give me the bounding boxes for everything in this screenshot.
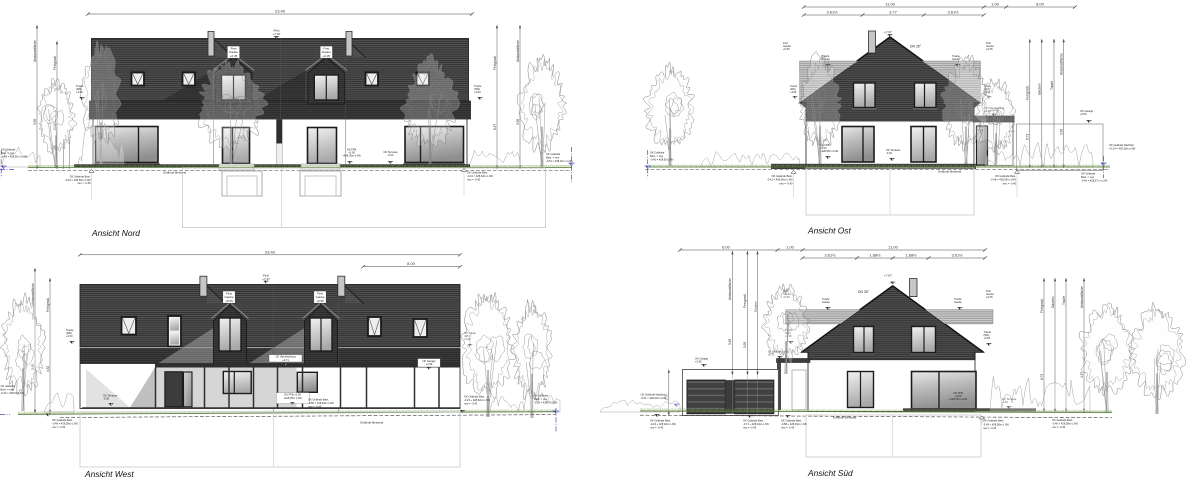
svg-text:6.00: 6.00 bbox=[722, 245, 731, 250]
svg-text:+428,05m ü.NN: +428,05m ü.NN bbox=[283, 396, 301, 400]
svg-text:8.00: 8.00 bbox=[407, 261, 416, 266]
svg-text:OK Gelände: OK Gelände bbox=[1, 384, 16, 388]
svg-text:Traufe: Traufe bbox=[1050, 81, 1054, 90]
svg-text:-0.45 = 428,60 m ü.NN: -0.45 = 428,60 m ü.NN bbox=[1, 154, 27, 158]
svg-text:OK Gelände Best.: OK Gelände Best. bbox=[995, 174, 1016, 178]
svg-text:+7.97: +7.97 bbox=[884, 30, 892, 34]
svg-text:Best. = neu: Best. = neu bbox=[650, 154, 664, 158]
svg-text:OK Gelände Best.: OK Gelände Best. bbox=[983, 419, 1004, 423]
svg-text:+3.05: +3.05 bbox=[1080, 112, 1087, 116]
svg-text:1.00: 1.00 bbox=[786, 245, 795, 250]
svg-text:OK Gelände Nachbar: OK Gelände Nachbar bbox=[1109, 143, 1134, 147]
svg-text:+428,05m ü.NN: +428,05m ü.NN bbox=[949, 397, 967, 401]
svg-text:Traufe: Traufe bbox=[1062, 296, 1066, 305]
svg-text:Ansicht Ost: Ansicht Ost bbox=[807, 226, 851, 236]
svg-text:-0.01 = 429,04m ü.NN: -0.01 = 429,04m ü.NN bbox=[641, 396, 667, 400]
svg-text:Abstandsfläche: Abstandsfläche bbox=[33, 40, 37, 62]
svg-text:+6.35: +6.35 bbox=[323, 54, 331, 58]
svg-text:3.61½: 3.61½ bbox=[947, 10, 959, 15]
svg-text:Fert.gmdl.: Fert.gmdl. bbox=[743, 294, 747, 308]
svg-text:-0.80 = 428,39m ü.NN: -0.80 = 428,39m ü.NN bbox=[308, 401, 334, 405]
svg-text:-0.51 = 428,04 m ü.NN: -0.51 = 428,04 m ü.NN bbox=[546, 159, 572, 163]
svg-text:8.73: 8.73 bbox=[1026, 134, 1030, 140]
svg-text:+0.24 = 429,29m ü.NN: +0.24 = 429,29m ü.NN bbox=[1109, 146, 1135, 150]
svg-text:-0.40 = 428,60 ü.NN: -0.40 = 428,60 ü.NN bbox=[1, 391, 25, 395]
svg-text:4.32: 4.32 bbox=[46, 366, 50, 372]
svg-text:-0.02: -0.02 bbox=[886, 151, 892, 155]
svg-text:Abstandsfläche: Abstandsfläche bbox=[31, 283, 35, 305]
svg-text:+7.47: +7.47 bbox=[262, 277, 270, 281]
svg-text:+3.63: +3.63 bbox=[790, 91, 797, 94]
svg-text:Fert.gmdl.: Fert.gmdl. bbox=[1040, 299, 1044, 313]
svg-text:neu = -0.40: neu = -0.40 bbox=[52, 425, 66, 429]
svg-text:Gauben: Gauben bbox=[753, 301, 757, 312]
svg-text:+6.35: +6.35 bbox=[230, 54, 238, 58]
svg-text:Ansicht Süd: Ansicht Süd bbox=[807, 468, 853, 478]
svg-text:Abstandsfläche: Abstandsfläche bbox=[1080, 286, 1084, 308]
svg-text:OK Gelände: OK Gelände bbox=[1, 148, 16, 152]
svg-text:OK Gelände: OK Gelände bbox=[650, 151, 665, 155]
svg-text:neu = -0.40: neu = -0.40 bbox=[308, 404, 322, 408]
svg-text:3.61½: 3.61½ bbox=[826, 10, 838, 15]
svg-text:Fert.gmdl.: Fert.gmdl. bbox=[1026, 86, 1030, 100]
svg-text:-0.71 + 428,34m ü.NN: -0.71 + 428,34m ü.NN bbox=[743, 422, 769, 426]
svg-text:DN 35°: DN 35° bbox=[858, 290, 870, 294]
svg-text:neu = -0.45: neu = -0.45 bbox=[77, 181, 91, 185]
svg-text:Fert.gmdl.: Fert.gmdl. bbox=[493, 56, 497, 70]
svg-text:+6.35: +6.35 bbox=[783, 47, 790, 51]
svg-text:1.88½: 1.88½ bbox=[905, 253, 917, 258]
svg-text:11.00: 11.00 bbox=[888, 245, 898, 250]
svg-text:+428,05m ü.NN: +428,05m ü.NN bbox=[342, 154, 360, 158]
svg-text:3.61½: 3.61½ bbox=[951, 253, 963, 258]
svg-text:Ansicht West: Ansicht West bbox=[84, 469, 134, 479]
svg-text:neu = -0.40: neu = -0.40 bbox=[983, 426, 997, 430]
svg-text:OK Gelände Best.: OK Gelände Best. bbox=[781, 419, 802, 423]
svg-text:+2.71: +2.71 bbox=[282, 358, 289, 362]
svg-text:+3.93: +3.93 bbox=[76, 90, 83, 94]
svg-text:Gauben: Gauben bbox=[1051, 296, 1055, 308]
svg-text:Abstandsfläche: Abstandsfläche bbox=[1060, 53, 1064, 75]
svg-text:OK Gelände: OK Gelände bbox=[534, 394, 549, 398]
svg-text:Gelände Bestand: Gelände Bestand bbox=[163, 171, 187, 175]
svg-text:Abstandsfläche: Abstandsfläche bbox=[516, 40, 520, 62]
svg-text:Best. = neu: Best. = neu bbox=[1081, 175, 1095, 179]
svg-text:11.00: 11.00 bbox=[885, 2, 895, 7]
svg-text:neu = -0.40: neu = -0.40 bbox=[781, 425, 795, 429]
svg-text:OK Gelände: OK Gelände bbox=[546, 152, 561, 156]
svg-text:4.37: 4.37 bbox=[1080, 372, 1084, 378]
svg-text:3.95: 3.95 bbox=[516, 119, 520, 125]
svg-text:Gelände Bestand: Gelände Bestand bbox=[833, 416, 857, 420]
svg-text:OK Gelände: OK Gelände bbox=[1081, 172, 1096, 176]
svg-text:Gelände Bestand: Gelände Bestand bbox=[938, 170, 962, 174]
svg-text:3.95: 3.95 bbox=[728, 339, 732, 345]
svg-text:Gaube: Gaube bbox=[954, 300, 962, 304]
svg-text:-0.41 = 428,64m ü.NN: -0.41 = 428,64m ü.NN bbox=[467, 174, 493, 178]
svg-text:+2.95: +2.95 bbox=[695, 360, 702, 364]
svg-text:-0.46 = 428,57 m ü.NN: -0.46 = 428,57 m ü.NN bbox=[1081, 178, 1107, 182]
svg-text:23.40: 23.40 bbox=[275, 9, 286, 14]
svg-text:Best. = neu: Best. = neu bbox=[1, 387, 15, 391]
svg-text:3.77: 3.77 bbox=[889, 10, 898, 15]
svg-text:1.88½: 1.88½ bbox=[869, 253, 881, 258]
svg-text:Fert.gmdl.: Fert.gmdl. bbox=[53, 56, 57, 70]
svg-text:+3.93: +3.93 bbox=[474, 90, 481, 94]
svg-text:3.95: 3.95 bbox=[33, 119, 37, 125]
svg-text:neu = -0.40: neu = -0.40 bbox=[467, 178, 481, 182]
svg-text:-0.46 + 428,58m ü.NN: -0.46 + 428,58m ü.NN bbox=[1052, 421, 1078, 425]
svg-text:-0.40 = 428,50 ü.NN: -0.40 = 428,50 ü.NN bbox=[650, 157, 674, 161]
svg-text:Ansicht Nord: Ansicht Nord bbox=[91, 228, 140, 238]
svg-text:Best. = neu: Best. = neu bbox=[546, 155, 560, 159]
svg-text:+3.63: +3.63 bbox=[66, 334, 73, 338]
svg-text:+3.63: +3.63 bbox=[984, 336, 991, 340]
svg-text:3.95: 3.95 bbox=[743, 342, 747, 348]
svg-text:8.73: 8.73 bbox=[1040, 374, 1044, 380]
svg-text:3.95: 3.95 bbox=[1060, 129, 1064, 135]
svg-text:OK Gelände Best.: OK Gelände Best. bbox=[650, 419, 671, 423]
svg-text:neu = -0.40: neu = -0.40 bbox=[1003, 181, 1017, 185]
svg-text:neu = -0.40: neu = -0.40 bbox=[650, 425, 664, 429]
svg-text:OK Gelände Best.: OK Gelände Best. bbox=[308, 398, 329, 402]
svg-text:+6.35: +6.35 bbox=[986, 295, 993, 299]
svg-text:6.97: 6.97 bbox=[493, 124, 497, 130]
svg-text:OK Gelände Best.: OK Gelände Best. bbox=[52, 418, 73, 422]
svg-text:OK Gelände Best.: OK Gelände Best. bbox=[1052, 418, 1073, 422]
svg-text:-0.38: -0.38 bbox=[103, 397, 109, 401]
svg-text:-0.23 + 428,62m ü.NN: -0.23 + 428,62m ü.NN bbox=[464, 398, 490, 402]
svg-text:neu = -0.40: neu = -0.40 bbox=[1052, 425, 1066, 429]
svg-text:-0.30 = 428,78 ü.NN: -0.30 = 428,78 ü.NN bbox=[534, 400, 558, 404]
svg-text:Gelände Bestand: Gelände Bestand bbox=[360, 421, 384, 425]
svg-text:OK Gelände Best.: OK Gelände Best. bbox=[772, 174, 793, 178]
svg-text:+6.35: +6.35 bbox=[986, 47, 993, 51]
svg-text:3.61½: 3.61½ bbox=[824, 253, 836, 258]
svg-text:OK Gelände Best.: OK Gelände Best. bbox=[464, 395, 485, 399]
svg-text:-0.88 + 428,33m ü.NN: -0.88 + 428,33m ü.NN bbox=[781, 422, 807, 426]
svg-text:+7.97: +7.97 bbox=[273, 32, 281, 36]
svg-text:Gauben: Gauben bbox=[1038, 83, 1042, 95]
svg-text:1.00: 1.00 bbox=[991, 2, 1000, 7]
svg-text:OK Gelände Best.: OK Gelände Best. bbox=[467, 171, 488, 175]
svg-text:Abstandsfläche: Abstandsfläche bbox=[728, 278, 732, 300]
svg-text:-0.41 = 428,64m ü.NN: -0.41 = 428,64m ü.NN bbox=[767, 178, 793, 182]
svg-text:23.40: 23.40 bbox=[265, 249, 276, 254]
svg-text:+6.55: +6.55 bbox=[316, 299, 324, 303]
svg-text:-0.46 = 428,59m ü.NN: -0.46 = 428,59m ü.NN bbox=[52, 421, 78, 425]
svg-text:neu = -0.40: neu = -0.40 bbox=[743, 425, 757, 429]
svg-text:Fert.gmdl.: Fert.gmdl. bbox=[46, 298, 50, 312]
svg-text:+2.96: +2.96 bbox=[426, 362, 433, 366]
svg-text:+6.55: +6.55 bbox=[225, 299, 233, 303]
svg-text:-0.23 + 428,02m ü.NN: -0.23 + 428,02m ü.NN bbox=[650, 422, 676, 426]
svg-text:neu = -0.40: neu = -0.40 bbox=[464, 401, 478, 405]
svg-text:Best. = neu: Best. = neu bbox=[534, 397, 548, 401]
svg-text:-0.46 = 428,59m ü.NN: -0.46 = 428,59m ü.NN bbox=[990, 178, 1016, 182]
svg-text:neu = -0.40: neu = -0.40 bbox=[779, 181, 793, 185]
svg-text:OK Gelände Best.: OK Gelände Best. bbox=[743, 419, 764, 423]
svg-text:DN 35°: DN 35° bbox=[910, 45, 922, 49]
svg-text:-5.49 + 428,58m ü.NN: -5.49 + 428,58m ü.NN bbox=[983, 422, 1009, 426]
svg-text:-0.02: -0.02 bbox=[388, 153, 394, 157]
svg-text:OK Gelände Nachbar: OK Gelände Nachbar bbox=[641, 393, 666, 397]
svg-text:Best. = neu: Best. = neu bbox=[1, 151, 15, 155]
svg-text:+7.87: +7.87 bbox=[884, 274, 892, 278]
svg-text:Gaube: Gaube bbox=[822, 300, 830, 304]
svg-text:8.00: 8.00 bbox=[1036, 2, 1045, 7]
svg-text:+428,05m ü.NN: +428,05m ü.NN bbox=[820, 149, 838, 153]
